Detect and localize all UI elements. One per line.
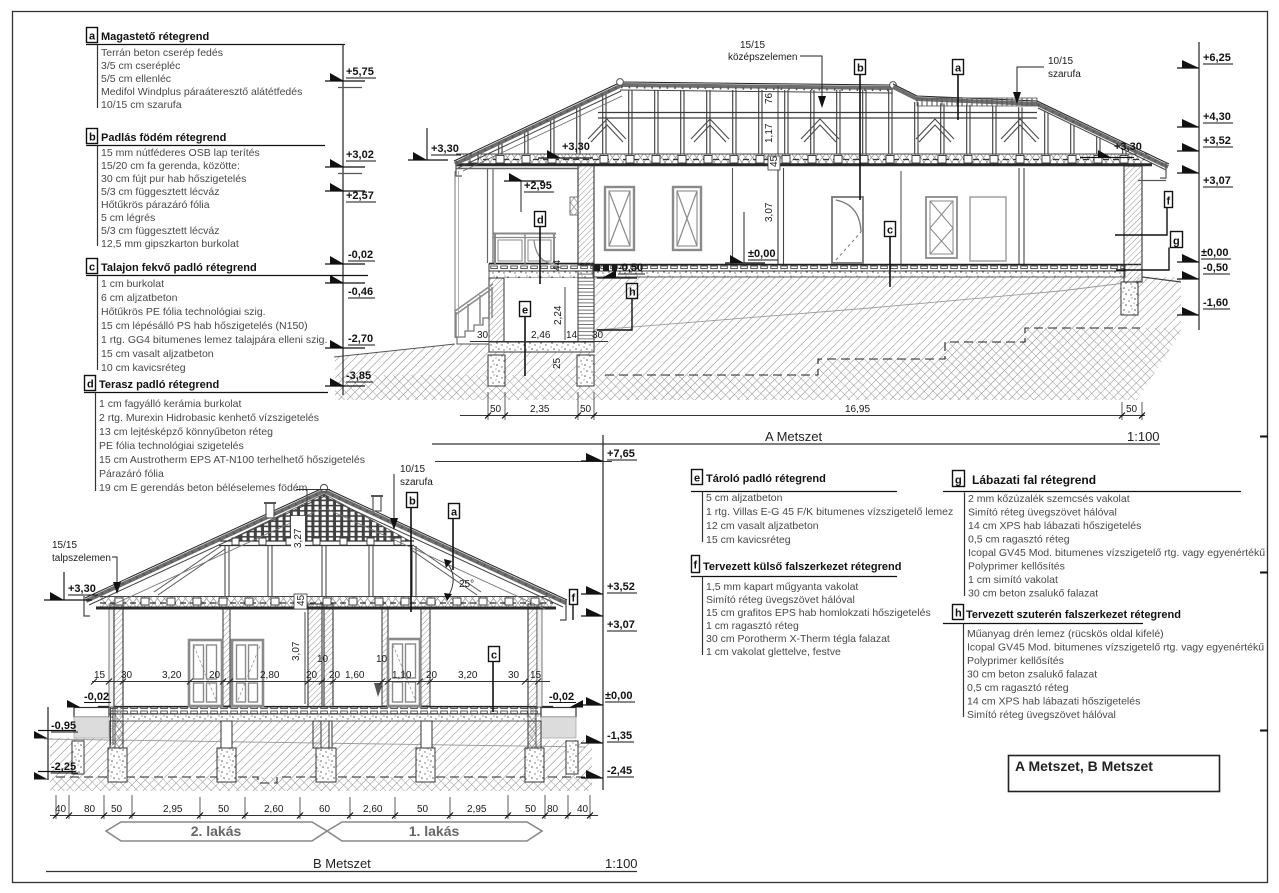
- svg-text:Icopal GV45 Mod. bitumenes víz: Icopal GV45 Mod. bitumenes vízszigetelő …: [968, 547, 1265, 559]
- svg-text:Tároló padló rétegrend: Tároló padló rétegrend: [706, 473, 826, 485]
- svg-text:-0,50: -0,50: [1203, 262, 1228, 274]
- svg-text:20: 20: [306, 670, 318, 681]
- svg-text:15 cm vasalt aljzatbeton: 15 cm vasalt aljzatbeton: [101, 348, 214, 360]
- svg-text:20: 20: [426, 670, 438, 681]
- svg-text:50: 50: [525, 804, 537, 815]
- svg-text:1 cm ragasztó réteg: 1 cm ragasztó réteg: [706, 620, 799, 632]
- svg-text:+2,57: +2,57: [346, 190, 374, 202]
- svg-text:1 rtg. Villas E-G 45 F/K bitum: 1 rtg. Villas E-G 45 F/K bitumenes vízsz…: [706, 506, 953, 518]
- svg-text:PE fólia technológiai szigetel: PE fólia technológiai szigetelés: [99, 440, 244, 452]
- svg-text:Tervezett külső falszerkezet r: Tervezett külső falszerkezet rétegrend: [703, 561, 901, 573]
- svg-text:50: 50: [218, 804, 230, 815]
- svg-text:+4,30: +4,30: [1203, 111, 1231, 123]
- svg-text:Icopal GV45 Mod. bitumenes víz: Icopal GV45 Mod. bitumenes vízszigetelő …: [967, 642, 1264, 654]
- svg-text:h: h: [955, 608, 962, 620]
- svg-text:14: 14: [566, 330, 578, 341]
- svg-text:3,07: 3,07: [764, 202, 775, 222]
- svg-text:±0,00: ±0,00: [748, 248, 775, 260]
- svg-text:Magastető rétegrend: Magastető rétegrend: [101, 31, 209, 43]
- svg-text:6 cm aljzatbeton: 6 cm aljzatbeton: [101, 292, 178, 304]
- svg-text:15/15: 15/15: [740, 40, 765, 51]
- svg-text:50: 50: [490, 404, 502, 415]
- svg-text:50: 50: [580, 404, 592, 415]
- svg-text:1 cm simító vakolat: 1 cm simító vakolat: [968, 574, 1058, 586]
- svg-text:80: 80: [84, 804, 96, 815]
- svg-text:d: d: [537, 215, 544, 227]
- svg-text:+3,07: +3,07: [1203, 175, 1231, 187]
- svg-text:Talajon fekvő padló rétegrend: Talajon fekvő padló rétegrend: [101, 262, 257, 274]
- svg-text:12,5 mm gipszkarton burkolat: 12,5 mm gipszkarton burkolat: [101, 238, 239, 250]
- svg-text:2,60: 2,60: [363, 804, 383, 815]
- svg-text:1 rtg. GG4 bitumenes lemez tal: 1 rtg. GG4 bitumenes lemez talajpára ell…: [101, 334, 327, 346]
- svg-text:2 mm kőzúzalék szemcsés vakola: 2 mm kőzúzalék szemcsés vakolat: [968, 493, 1130, 505]
- svg-text:±0,00: ±0,00: [605, 690, 632, 702]
- svg-text:1,5 mm kapart műgyanta vakolat: 1,5 mm kapart műgyanta vakolat: [706, 581, 858, 593]
- svg-text:c: c: [89, 262, 95, 274]
- svg-text:25°: 25°: [459, 579, 474, 590]
- svg-text:2,80: 2,80: [260, 670, 280, 681]
- svg-text:20: 20: [209, 670, 221, 681]
- svg-text:10: 10: [376, 654, 388, 665]
- svg-text:A Metszet: A Metszet: [765, 429, 822, 444]
- svg-text:40: 40: [55, 804, 67, 815]
- svg-text:60: 60: [319, 804, 331, 815]
- svg-text:-3,85: -3,85: [346, 370, 371, 382]
- svg-text:30: 30: [477, 330, 489, 341]
- svg-text:f: f: [572, 593, 576, 605]
- svg-text:1:100: 1:100: [605, 856, 638, 871]
- svg-text:50: 50: [111, 804, 123, 815]
- svg-text:45: 45: [296, 594, 307, 606]
- svg-text:+3,07: +3,07: [607, 619, 635, 631]
- svg-text:a: a: [89, 31, 96, 43]
- svg-text:10/15 cm szarufa: 10/15 cm szarufa: [101, 99, 182, 111]
- svg-text:-2,70: -2,70: [348, 333, 373, 345]
- svg-text:15/15: 15/15: [52, 540, 77, 551]
- svg-text:0,5 cm ragasztó réteg: 0,5 cm ragasztó réteg: [967, 682, 1069, 694]
- svg-text:c: c: [887, 225, 893, 237]
- svg-text:1 cm fagyálló kerámia burkolat: 1 cm fagyálló kerámia burkolat: [99, 398, 241, 410]
- svg-text:25: 25: [552, 357, 563, 369]
- svg-text:76: 76: [764, 92, 775, 104]
- svg-text:+3,30: +3,30: [431, 143, 459, 155]
- svg-text:15: 15: [94, 670, 106, 681]
- svg-text:Műanyag drén lemez (rücskös ol: Műanyag drén lemez (rücskös oldal kifelé…: [967, 628, 1164, 640]
- svg-text:16,95: 16,95: [845, 404, 870, 415]
- svg-text:10/15: 10/15: [1048, 56, 1073, 67]
- svg-text:Simító réteg üvegszövet hálóva: Simító réteg üvegszövet hálóval: [967, 709, 1116, 721]
- svg-text:1 cm vakolat glettelve, festve: 1 cm vakolat glettelve, festve: [706, 646, 841, 658]
- svg-text:a: a: [451, 507, 458, 519]
- svg-text:g: g: [955, 475, 962, 487]
- svg-text:5/3 cm függesztett lécváz: 5/3 cm függesztett lécváz: [101, 186, 219, 198]
- svg-text:B Metszet: B Metszet: [313, 856, 371, 871]
- svg-text:3,20: 3,20: [458, 670, 478, 681]
- svg-text:+3,52: +3,52: [607, 581, 635, 593]
- svg-text:+5,75: +5,75: [346, 66, 374, 78]
- svg-text:Hőtűkrös PE fólia technológiai: Hőtűkrös PE fólia technológiai szig.: [101, 306, 266, 318]
- svg-text:d: d: [87, 379, 94, 391]
- svg-text:-0,50: -0,50: [618, 262, 643, 274]
- svg-text:1:100: 1:100: [1127, 429, 1160, 444]
- svg-text:1 cm burkolat: 1 cm burkolat: [101, 278, 164, 290]
- svg-text:14 cm XPS hab lábazati hőszige: 14 cm XPS hab lábazati hőszigetelés: [968, 520, 1141, 532]
- svg-text:15 cm grafitos EPS hab homlokz: 15 cm grafitos EPS hab homlokzati hőszig…: [706, 607, 931, 619]
- svg-text:-1,60: -1,60: [1203, 297, 1228, 309]
- svg-text:Terasz padló rétegrend: Terasz padló rétegrend: [99, 379, 219, 391]
- svg-text:15: 15: [530, 670, 542, 681]
- svg-text:2,95: 2,95: [163, 804, 183, 815]
- svg-text:2. lakás: 2. lakás: [191, 823, 242, 839]
- svg-text:30: 30: [121, 670, 133, 681]
- svg-text:10/15: 10/15: [400, 464, 425, 475]
- svg-text:b: b: [857, 63, 864, 75]
- svg-text:45: 45: [769, 155, 780, 167]
- svg-text:-0,02: -0,02: [84, 691, 109, 703]
- svg-text:+6,25: +6,25: [1203, 52, 1231, 64]
- svg-text:13 cm lejtésképző könnyűbeton: 13 cm lejtésképző könnyűbeton réteg: [99, 426, 273, 438]
- svg-text:2,35: 2,35: [530, 404, 550, 415]
- svg-text:Polyprimer kellősítés: Polyprimer kellősítés: [967, 655, 1064, 667]
- svg-text:Terrán beton cserép fedés: Terrán beton cserép fedés: [101, 47, 223, 59]
- svg-text:50: 50: [417, 804, 429, 815]
- svg-text:+2,95: +2,95: [524, 180, 552, 192]
- svg-text:12 cm vasalt aljzatbeton: 12 cm vasalt aljzatbeton: [706, 520, 819, 532]
- svg-text:10 cm kavicsréteg: 10 cm kavicsréteg: [101, 362, 186, 374]
- svg-text:2,24: 2,24: [553, 305, 564, 325]
- svg-text:Tervezett szuterén falszerkeze: Tervezett szuterén falszerkezet rétegren…: [966, 609, 1181, 621]
- svg-text:c: c: [491, 650, 497, 662]
- svg-text:1,60: 1,60: [345, 670, 365, 681]
- svg-text:+3,02: +3,02: [346, 149, 374, 161]
- svg-text:3,07: 3,07: [291, 641, 302, 661]
- svg-text:Padlás födém rétegrend: Padlás födém rétegrend: [101, 132, 226, 144]
- svg-text:15 cm kavicsréteg: 15 cm kavicsréteg: [706, 534, 791, 546]
- svg-text:30 cm beton zsalukő falazat: 30 cm beton zsalukő falazat: [968, 588, 1098, 600]
- svg-text:e: e: [694, 473, 700, 485]
- svg-text:Lábazati fal rétegrend: Lábazati fal rétegrend: [972, 473, 1096, 487]
- svg-text:-2,25: -2,25: [51, 761, 76, 773]
- svg-text:2,60: 2,60: [264, 804, 284, 815]
- svg-text:Medifol Windplus páraáteresztő: Medifol Windplus páraáteresztő alátétfed…: [101, 86, 302, 98]
- svg-text:1. lakás: 1. lakás: [409, 823, 460, 839]
- svg-text:szarufa: szarufa: [1048, 69, 1081, 80]
- svg-text:b: b: [89, 132, 96, 144]
- svg-text:szarufa: szarufa: [400, 477, 433, 488]
- svg-text:3,27: 3,27: [293, 528, 304, 548]
- svg-text:f: f: [1167, 196, 1171, 208]
- svg-text:f: f: [694, 560, 698, 572]
- svg-text:1,17: 1,17: [764, 123, 775, 143]
- svg-text:30: 30: [508, 670, 520, 681]
- svg-text:+3,30: +3,30: [562, 141, 590, 153]
- svg-text:a: a: [955, 63, 962, 75]
- svg-text:e: e: [522, 305, 528, 317]
- svg-text:Hőtűkrös párazáró fólia: Hőtűkrös párazáró fólia: [101, 199, 210, 211]
- svg-text:A Metszet, B Metszet: A Metszet, B Metszet: [1015, 758, 1153, 774]
- svg-text:15 cm Austrotherm EPS AT-N100: 15 cm Austrotherm EPS AT-N100 terhelhető…: [99, 454, 365, 466]
- svg-text:Simító réteg üvegszövet hálóva: Simító réteg üvegszövet hálóval: [706, 594, 855, 606]
- svg-text:2,95: 2,95: [467, 804, 487, 815]
- svg-text:2,46: 2,46: [531, 330, 551, 341]
- svg-text:Polyprimer kellősítés: Polyprimer kellősítés: [968, 561, 1065, 573]
- svg-text:0,5 cm ragasztó réteg: 0,5 cm ragasztó réteg: [968, 534, 1070, 546]
- svg-text:+3,52: +3,52: [1203, 135, 1231, 147]
- svg-text:5 cm aljzatbeton: 5 cm aljzatbeton: [706, 492, 783, 504]
- svg-text:15/20 cm fa gerenda, közötte:: 15/20 cm fa gerenda, közötte:: [101, 160, 240, 172]
- svg-text:80: 80: [547, 804, 559, 815]
- svg-text:g: g: [1173, 236, 1180, 248]
- svg-text:-0,46: -0,46: [348, 286, 373, 298]
- svg-text:-0,02: -0,02: [549, 691, 574, 703]
- svg-text:h: h: [629, 287, 636, 299]
- svg-text:30 cm Porotherm X-Therm tégla: 30 cm Porotherm X-Therm tégla falazat: [706, 633, 890, 645]
- svg-text:középszelemen: középszelemen: [728, 52, 797, 63]
- svg-text:50: 50: [1126, 404, 1138, 415]
- svg-text:30: 30: [592, 330, 604, 341]
- svg-text:b: b: [409, 496, 416, 508]
- svg-text:14 cm XPS hab lábazati hőszige: 14 cm XPS hab lábazati hőszigetelés: [967, 696, 1140, 708]
- svg-text:3,20: 3,20: [162, 670, 182, 681]
- svg-text:-2,45: -2,45: [607, 765, 632, 777]
- svg-text:Párazáró fólia: Párazáró fólia: [99, 468, 164, 480]
- svg-text:15 cm lépésálló PS hab hőszige: 15 cm lépésálló PS hab hőszigetelés (N15…: [101, 320, 308, 332]
- svg-text:44: 44: [552, 259, 563, 271]
- svg-text:5 cm légrés: 5 cm légrés: [101, 212, 155, 224]
- svg-text:-1,35: -1,35: [607, 730, 632, 742]
- svg-text:30 cm beton zsalukő falazat: 30 cm beton zsalukő falazat: [967, 669, 1097, 681]
- svg-text:2 rtg. Murexin Hidrobasic kenh: 2 rtg. Murexin Hidrobasic kenhető vízszi…: [99, 412, 319, 424]
- svg-text:+7,65: +7,65: [607, 448, 635, 460]
- svg-text:5/3 cm függesztett lécváz: 5/3 cm függesztett lécváz: [101, 225, 219, 237]
- svg-text:20: 20: [329, 670, 341, 681]
- svg-text:1,10: 1,10: [392, 670, 412, 681]
- svg-text:5/5 cm ellenléc: 5/5 cm ellenléc: [101, 73, 171, 85]
- svg-text:19 cm E gerendás beton bélésel: 19 cm E gerendás beton béléselemes födém: [99, 482, 308, 494]
- svg-text:15 mm nútféderes OSB lap terít: 15 mm nútféderes OSB lap terítés: [101, 147, 260, 159]
- svg-text:±0,00: ±0,00: [1201, 247, 1228, 259]
- svg-text:+3,30: +3,30: [1114, 141, 1142, 153]
- svg-text:-0,02: -0,02: [348, 249, 373, 261]
- svg-text:30 cm fújt pur hab hőszigetelé: 30 cm fújt pur hab hőszigetelés: [101, 173, 246, 185]
- svg-text:talpszelemen: talpszelemen: [52, 553, 111, 564]
- svg-text:40: 40: [577, 804, 589, 815]
- svg-text:Simító réteg üvegszövet hálóva: Simító réteg üvegszövet hálóval: [968, 507, 1117, 519]
- svg-text:3/5 cm cserépléc: 3/5 cm cserépléc: [101, 60, 180, 72]
- svg-text:-0,95: -0,95: [51, 720, 76, 732]
- svg-text:10: 10: [317, 654, 329, 665]
- svg-text:+3,30: +3,30: [68, 583, 96, 595]
